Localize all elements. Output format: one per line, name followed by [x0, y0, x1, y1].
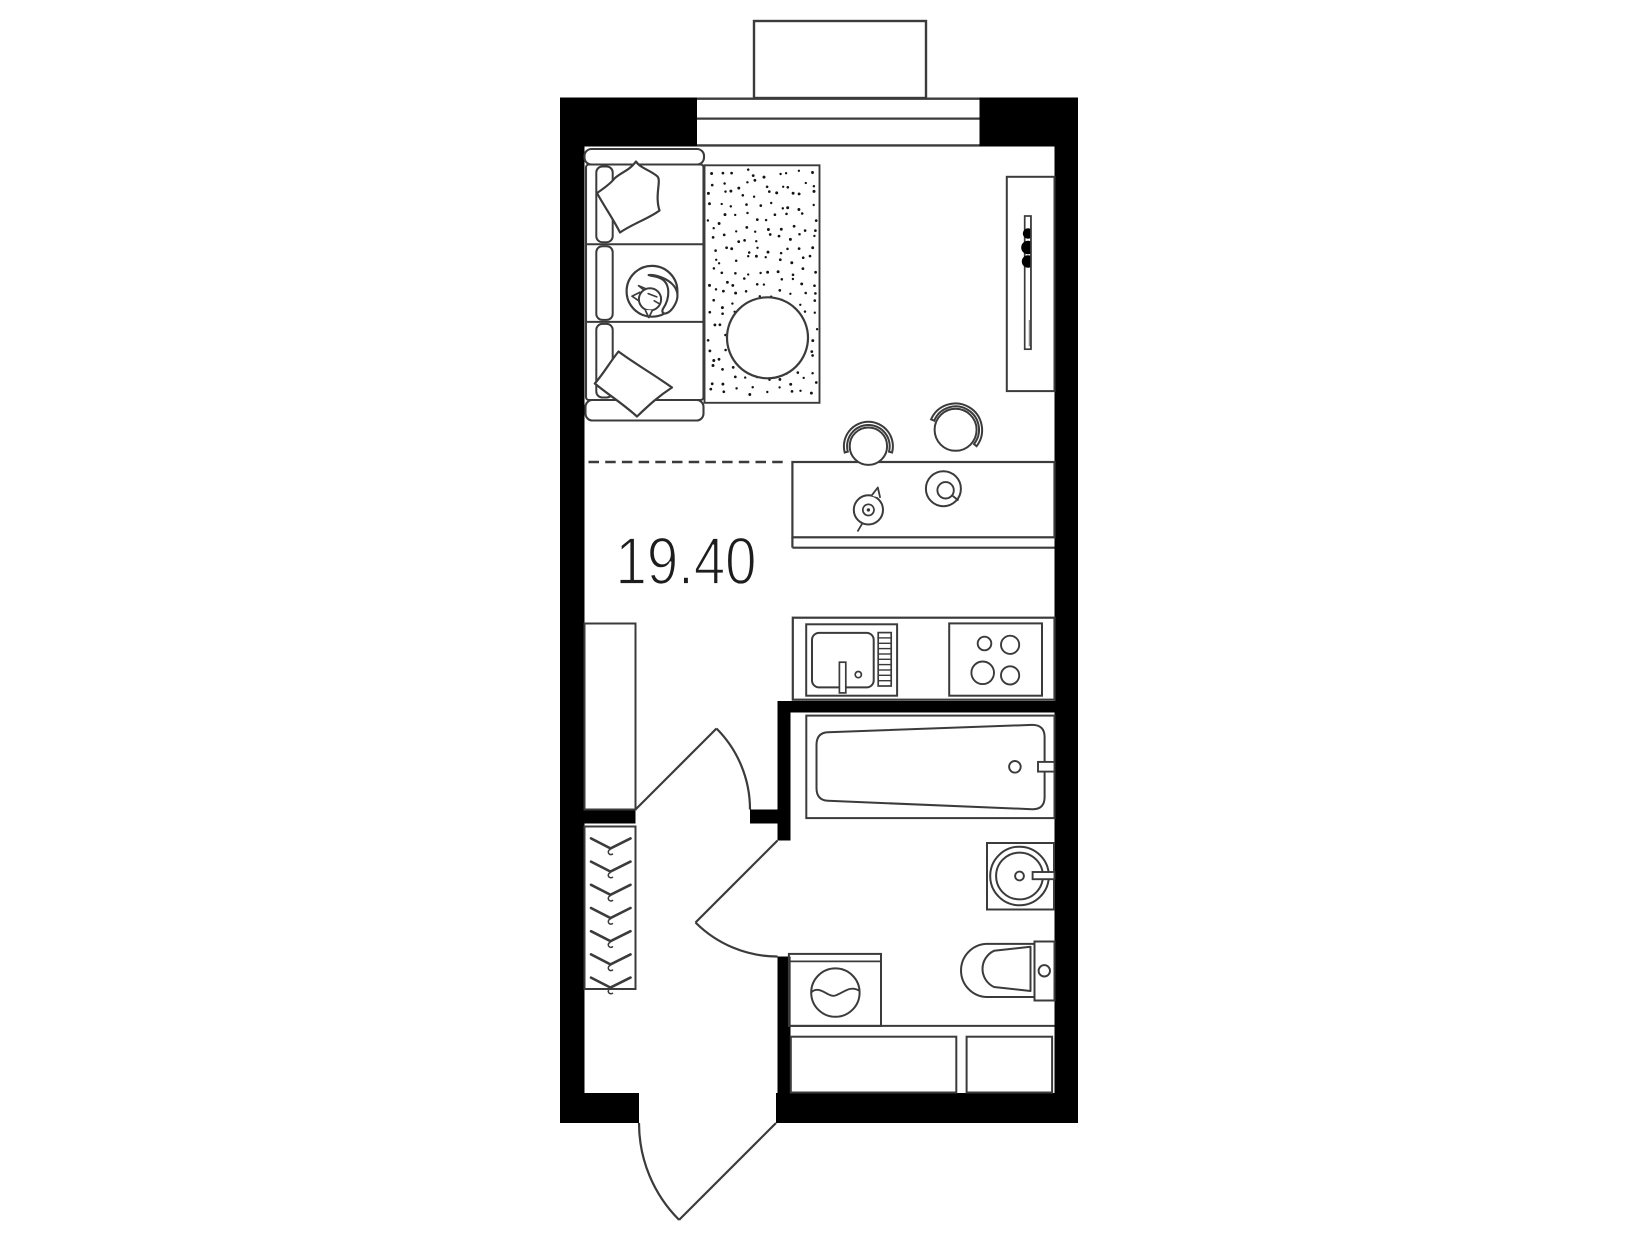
svg-text:19.40: 19.40: [616, 524, 757, 599]
